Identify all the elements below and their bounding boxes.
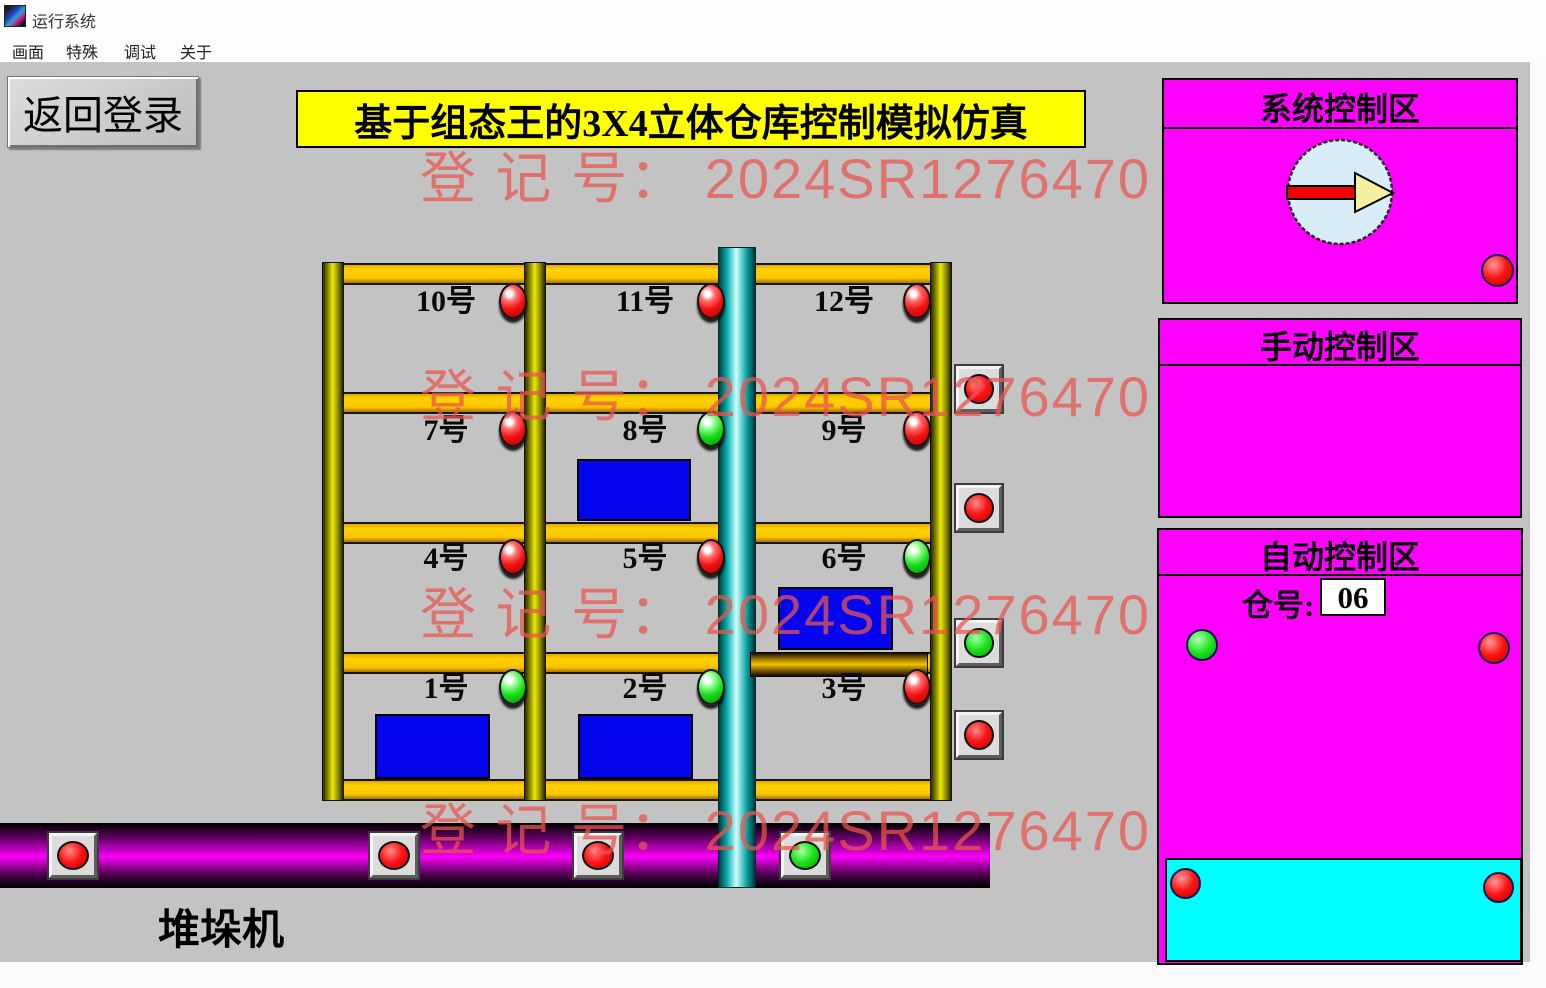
- manual-control-panel: 手动控制区: [1158, 318, 1522, 518]
- auto-panel-title: 自动控制区: [1159, 532, 1521, 578]
- menu-item-screen[interactable]: 画面: [12, 39, 44, 63]
- cell-label-12: 12号: [806, 286, 882, 318]
- manual-panel-title: 手动控制区: [1160, 322, 1520, 368]
- return-login-button[interactable]: 返回登录: [7, 76, 199, 148]
- bottom-window-strip: [0, 962, 1546, 988]
- cell-label-9: 9号: [806, 415, 882, 447]
- estop-lamp: [1481, 254, 1514, 287]
- red-indicator-icon: [964, 720, 994, 750]
- stacker-rail: [0, 823, 990, 888]
- divider: [1160, 364, 1520, 366]
- cell-led-8: [697, 411, 725, 447]
- window-title: 运行系统: [32, 8, 96, 32]
- cell-led-9: [903, 411, 931, 447]
- rack-side-button-1[interactable]: [956, 366, 1002, 412]
- mode-selector-dial[interactable]: [1284, 136, 1396, 248]
- store-lamp: [1186, 629, 1218, 661]
- green-indicator-icon: [964, 628, 994, 658]
- app-window: 运行系统 画面 特殊 调试 关于 返回登录 基于组态王的3X4立体仓库控制模拟仿…: [0, 0, 1546, 988]
- system-panel-title: 系统控制区: [1164, 84, 1516, 130]
- cell-led-6: [903, 539, 931, 575]
- page-title: 基于组态王的3X4立体仓库控制模拟仿真: [296, 90, 1086, 148]
- fetch-lamp: [1478, 632, 1510, 664]
- green-indicator-icon: [789, 841, 821, 870]
- bin-number-label: 仓号:: [1242, 580, 1314, 625]
- red-indicator-icon: [582, 841, 614, 870]
- cell-led-11: [697, 283, 725, 319]
- cell-led-10: [499, 283, 527, 319]
- rack-beam: [322, 779, 952, 801]
- cell-label-11: 11号: [607, 286, 683, 318]
- rack-pole: [322, 262, 344, 801]
- red-indicator-icon: [57, 841, 89, 870]
- red-indicator-icon: [964, 374, 994, 404]
- menu-bar: 画面 特殊 调试 关于: [0, 36, 1546, 62]
- cargo-box-1: [375, 714, 490, 779]
- app-icon: [4, 5, 26, 27]
- cell-label-2: 2号: [607, 673, 683, 705]
- stacker-label: 堆垛机: [158, 896, 284, 957]
- rack-beam: [322, 263, 952, 285]
- menu-item-special[interactable]: 特殊: [66, 39, 98, 63]
- cargo-box-6: [778, 587, 893, 650]
- bin-number-input[interactable]: 06: [1320, 578, 1386, 616]
- cell-label-5: 5号: [607, 543, 683, 575]
- rack-beam: [322, 392, 952, 414]
- divider: [1159, 574, 1521, 576]
- rail-button-2[interactable]: [370, 833, 418, 878]
- rack-pole: [930, 262, 952, 801]
- cell-label-4: 4号: [408, 543, 484, 575]
- empty-sim-lamp: [1483, 872, 1514, 903]
- simulation-panel: [1165, 858, 1522, 962]
- right-window-strip: [1530, 62, 1546, 988]
- cargo-box-8: [577, 459, 691, 521]
- cell-led-7: [499, 411, 527, 447]
- cell-led-4: [499, 539, 527, 575]
- menu-item-debug[interactable]: 调试: [124, 39, 156, 63]
- red-indicator-icon: [378, 841, 410, 870]
- cell-label-6: 6号: [806, 543, 882, 575]
- cell-label-7: 7号: [408, 415, 484, 447]
- rack-pole: [524, 262, 546, 801]
- menu-item-about[interactable]: 关于: [180, 39, 212, 63]
- cell-led-2: [697, 669, 725, 705]
- rail-button-4[interactable]: [781, 833, 829, 878]
- cell-label-10: 10号: [408, 286, 484, 318]
- cell-led-5: [697, 539, 725, 575]
- cell-label-3: 3号: [806, 673, 882, 705]
- rail-button-3[interactable]: [574, 833, 622, 878]
- cell-led-1: [499, 669, 527, 705]
- rack-side-button-2[interactable]: [956, 485, 1002, 531]
- rack-side-button-3[interactable]: [956, 620, 1002, 666]
- cell-label-1: 1号: [408, 673, 484, 705]
- stacker-mast: [718, 247, 756, 888]
- rail-button-1[interactable]: [49, 833, 97, 878]
- red-indicator-icon: [964, 493, 994, 523]
- full-sim-lamp: [1170, 868, 1201, 899]
- title-bar: 运行系统: [0, 0, 1546, 36]
- cell-led-12: [903, 283, 931, 319]
- cell-led-3: [903, 669, 931, 705]
- rack-side-button-4[interactable]: [956, 712, 1002, 758]
- divider: [1164, 127, 1516, 129]
- rack-beam: [322, 522, 952, 544]
- cargo-box-2: [578, 714, 693, 779]
- cell-label-8: 8号: [607, 415, 683, 447]
